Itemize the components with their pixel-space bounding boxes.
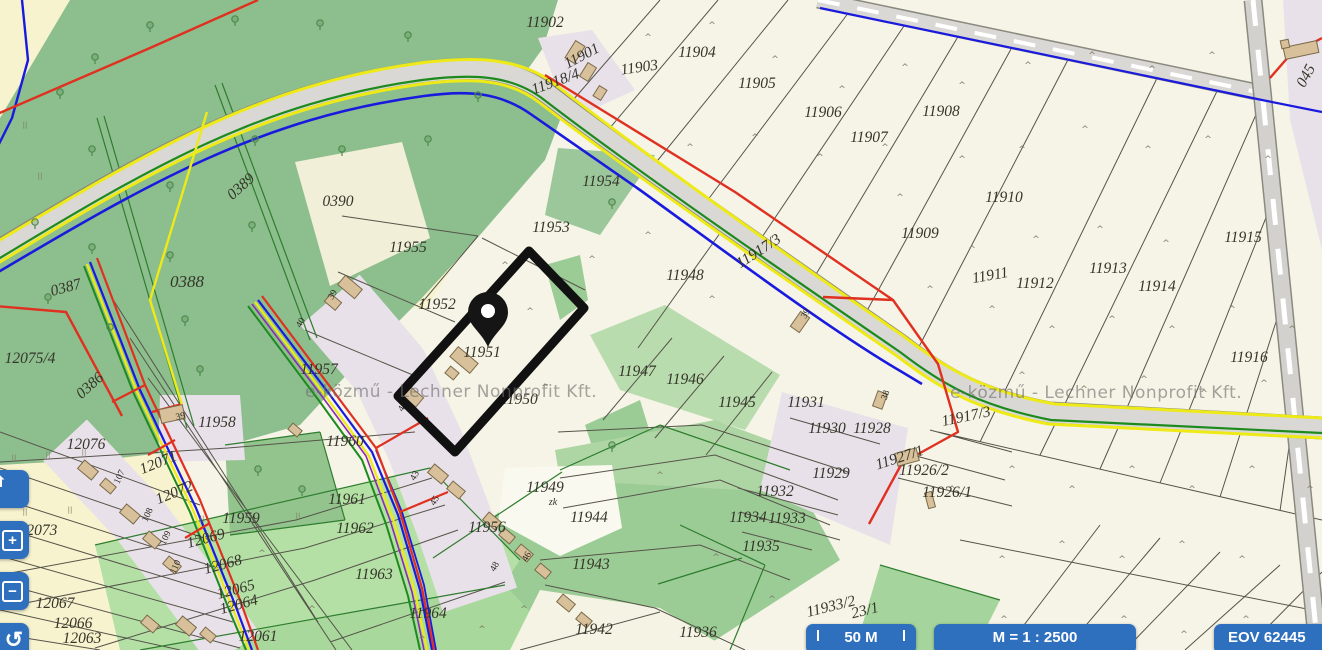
svg-text:||: ||	[23, 121, 28, 129]
svg-text:^: ^	[751, 133, 759, 143]
minus-icon: −	[2, 581, 23, 602]
svg-text:^: ^	[588, 255, 596, 265]
zoom-out-button[interactable]: −	[0, 572, 29, 610]
svg-text:^: ^	[771, 55, 779, 65]
parcel-label: 11942	[575, 621, 613, 638]
parcel-label: 11957	[300, 361, 339, 378]
parcel-label: 11959	[222, 510, 260, 527]
svg-text:||: ||	[38, 172, 43, 180]
svg-text:||: ||	[46, 451, 51, 459]
eov-coordinates-label: EOV 62445	[1228, 629, 1306, 646]
svg-text:^: ^	[1200, 389, 1208, 399]
svg-text:^: ^	[816, 153, 824, 163]
parcel-label: 11926/1	[922, 484, 972, 501]
eov-coordinates: EOV 62445	[1214, 624, 1322, 650]
parcel-label: 11928	[853, 420, 891, 437]
parcel-label: 11909	[901, 225, 939, 242]
parcel-label: 12075/4	[5, 350, 56, 367]
parcel-label: 11951	[463, 344, 501, 361]
parcel-label: 12061	[239, 628, 278, 645]
svg-text:^: ^	[1260, 379, 1268, 389]
map-scale-button[interactable]: M = 1 : 2500	[934, 624, 1136, 650]
svg-text:^: ^	[968, 245, 976, 255]
parcel-label: 11932	[756, 483, 794, 500]
svg-text:^: ^	[1108, 315, 1116, 325]
scale-bar: 50 M	[806, 624, 916, 650]
parcel-label: 11926/2	[899, 462, 949, 479]
svg-text:^: ^	[926, 285, 934, 295]
map-scale-label: M = 1 : 2500	[993, 629, 1078, 646]
svg-text:^: ^	[1180, 630, 1188, 640]
parcel-label: 11963	[355, 566, 393, 583]
parcel-label: 11948	[666, 267, 704, 284]
scale-bar-left-tick	[817, 630, 819, 641]
parcel-label: 11943	[572, 556, 610, 573]
svg-text:^: ^	[258, 549, 266, 559]
parcel-label: 11960	[326, 433, 364, 450]
svg-text:^: ^	[1168, 325, 1176, 335]
parcel-label: 11902	[526, 14, 564, 31]
parcel-label: 12063	[63, 630, 102, 647]
parcel-label: 11931	[787, 394, 825, 411]
parcel-label: 11954	[582, 173, 620, 190]
svg-text:^: ^	[1024, 61, 1032, 71]
svg-text:^: ^	[526, 307, 534, 317]
map-canvas: ^^^^^^^^^^^^^^^^^^^^^^^^^^^^^^^^^^^^^^^^…	[0, 0, 1322, 650]
svg-text:^: ^	[1144, 145, 1152, 155]
svg-text:^: ^	[1058, 540, 1066, 550]
scale-bar-right-tick	[903, 630, 905, 641]
svg-text:^: ^	[1018, 371, 1026, 381]
svg-text:^: ^	[1068, 485, 1076, 495]
svg-text:^: ^	[1208, 51, 1216, 61]
svg-text:^: ^	[708, 21, 716, 31]
svg-text:^: ^	[998, 555, 1006, 565]
parcel-label: 12067	[36, 595, 76, 612]
parcel-label: 12076	[67, 436, 106, 453]
parcel-label: 11912	[1016, 275, 1054, 292]
svg-text:^: ^	[958, 155, 966, 165]
parcel-label: 11945	[718, 394, 756, 411]
scale-bar-label: 50 M	[844, 629, 877, 646]
parcel-label: 11956	[468, 519, 506, 536]
parcel-label: 11933	[768, 510, 806, 527]
parcel-label: 11915	[1224, 229, 1262, 246]
svg-text:^: ^	[478, 625, 486, 635]
svg-text:^: ^	[418, 635, 426, 645]
svg-text:^: ^	[1096, 225, 1104, 235]
svg-text:^: ^	[541, 383, 549, 393]
svg-text:||: ||	[68, 506, 73, 514]
svg-text:^: ^	[1088, 51, 1096, 61]
parcel-label: 11962	[336, 520, 374, 537]
svg-text:^: ^	[644, 231, 652, 241]
svg-text:^: ^	[1018, 145, 1026, 155]
svg-text:^: ^	[1178, 540, 1186, 550]
parcel-label: 11955	[389, 239, 427, 256]
svg-text:^: ^	[838, 85, 846, 95]
parcel-label: 11910	[985, 189, 1023, 206]
svg-text:^: ^	[708, 295, 716, 305]
svg-text:^: ^	[1118, 555, 1126, 565]
parcel-label: 11949	[526, 479, 564, 496]
undo-icon: ↺	[5, 629, 23, 650]
svg-text:^: ^	[988, 305, 996, 315]
parcel-label: 11907	[850, 129, 889, 146]
svg-text:^: ^	[1248, 465, 1256, 475]
svg-text:^: ^	[901, 63, 909, 73]
svg-text:^: ^	[1128, 465, 1136, 475]
parcel-label: 11958	[198, 414, 236, 431]
parcel-label: 11935	[742, 538, 780, 555]
parcel-label: 11952	[418, 296, 456, 313]
svg-text:^: ^	[1188, 485, 1196, 495]
parcel-label: 11930	[808, 420, 846, 437]
svg-text:^: ^	[1048, 325, 1056, 335]
svg-text:^: ^	[958, 81, 966, 91]
parcel-label: 11961	[328, 491, 366, 508]
parcel-label: 11929	[812, 465, 850, 482]
parcel-label: 11934	[729, 509, 767, 526]
parcel-label: zk	[548, 497, 558, 508]
parcel-label: 11913	[1089, 260, 1127, 277]
svg-text:^: ^	[644, 33, 652, 43]
svg-text:^: ^	[1162, 239, 1170, 249]
svg-text:^: ^	[1140, 375, 1148, 385]
parcel-label: 11905	[738, 75, 776, 92]
plus-icon: +	[2, 530, 23, 551]
svg-text:^: ^	[1306, 485, 1314, 495]
svg-text:^: ^	[712, 553, 720, 563]
parcel-label: 11906	[804, 104, 842, 121]
svg-text:^: ^	[308, 605, 316, 615]
parcel-label: 11908	[922, 103, 960, 120]
home-icon	[0, 470, 7, 490]
parcel-label: 11936	[679, 624, 717, 641]
svg-text:^: ^	[1228, 305, 1236, 315]
undo-button[interactable]: ↺	[0, 623, 29, 650]
parcel-label: 11904	[678, 44, 716, 61]
svg-text:^: ^	[520, 605, 528, 615]
svg-text:^: ^	[1080, 385, 1088, 395]
home-button[interactable]	[0, 470, 29, 508]
parcel-label: 11944	[570, 509, 608, 526]
map-viewport[interactable]: ^^^^^^^^^^^^^^^^^^^^^^^^^^^^^^^^^^^^^^^^…	[0, 0, 1322, 650]
svg-text:^: ^	[896, 193, 904, 203]
parcel-label: 0388	[170, 272, 205, 291]
svg-text:^: ^	[1148, 65, 1156, 75]
svg-text:^: ^	[1081, 125, 1089, 135]
svg-text:||: ||	[296, 512, 301, 520]
svg-text:||: ||	[200, 515, 205, 523]
svg-text:^: ^	[1238, 555, 1246, 565]
parcel-label: 11916	[1230, 349, 1268, 366]
svg-text:||: ||	[23, 508, 28, 516]
svg-text:^: ^	[1264, 155, 1272, 165]
svg-text:^: ^	[656, 471, 664, 481]
svg-text:^: ^	[768, 595, 776, 605]
zoom-in-button[interactable]: +	[0, 521, 29, 559]
svg-text:^: ^	[686, 143, 694, 153]
svg-text:^: ^	[1204, 135, 1212, 145]
svg-text:^: ^	[1288, 325, 1296, 335]
parcel-label: 11964	[409, 605, 447, 622]
parcel-label: 11947	[618, 363, 657, 380]
svg-text:^: ^	[1008, 465, 1016, 475]
parcel-label: 0390	[323, 193, 354, 210]
parcel-label: 11946	[666, 371, 704, 388]
svg-text:^: ^	[1032, 235, 1040, 245]
svg-text:||: ||	[12, 454, 17, 462]
parcel-label: 11953	[532, 219, 570, 236]
parcel-label: 11914	[1138, 278, 1176, 295]
